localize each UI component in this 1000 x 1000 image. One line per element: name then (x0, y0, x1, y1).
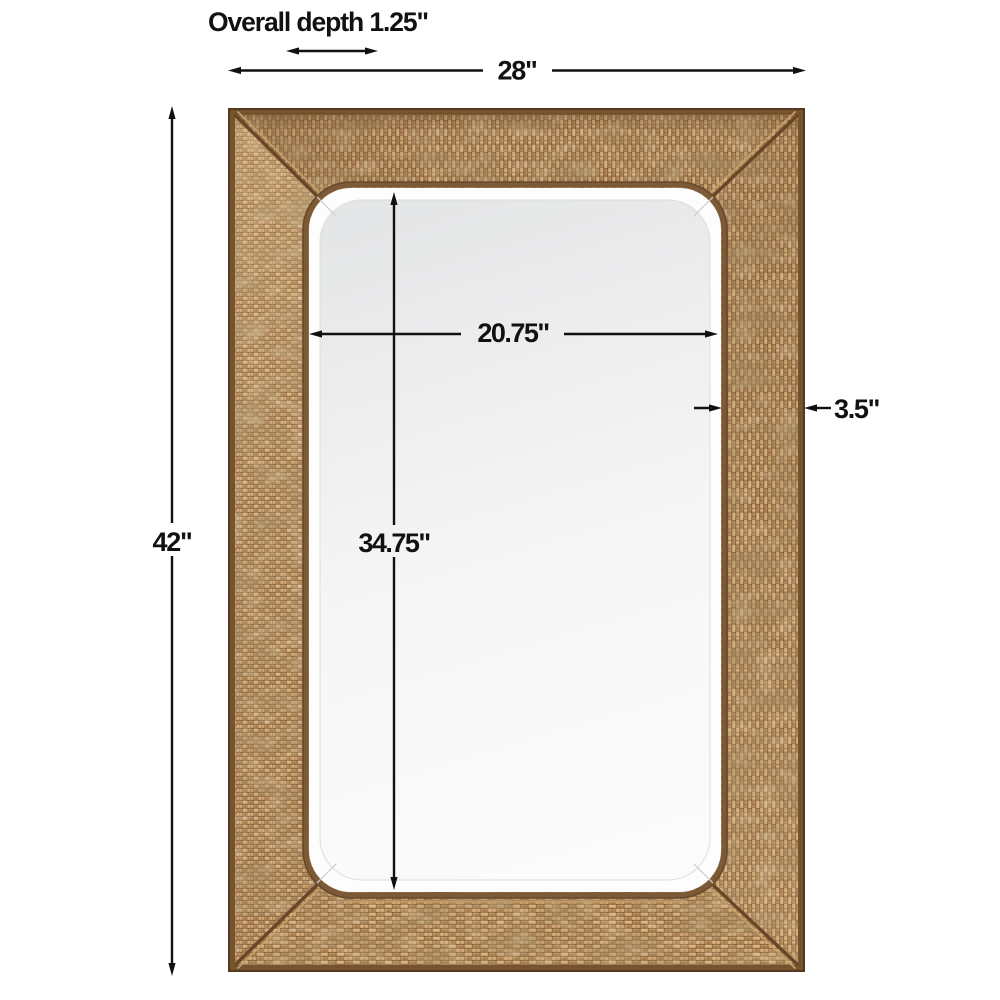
svg-text:34.75": 34.75" (358, 528, 430, 558)
svg-text:28": 28" (498, 56, 537, 86)
svg-text:20.75": 20.75" (477, 318, 549, 348)
svg-text:Overall depth 1.25": Overall depth 1.25" (208, 7, 428, 37)
svg-text:42": 42" (153, 527, 192, 557)
svg-text:3.5": 3.5" (834, 394, 880, 424)
